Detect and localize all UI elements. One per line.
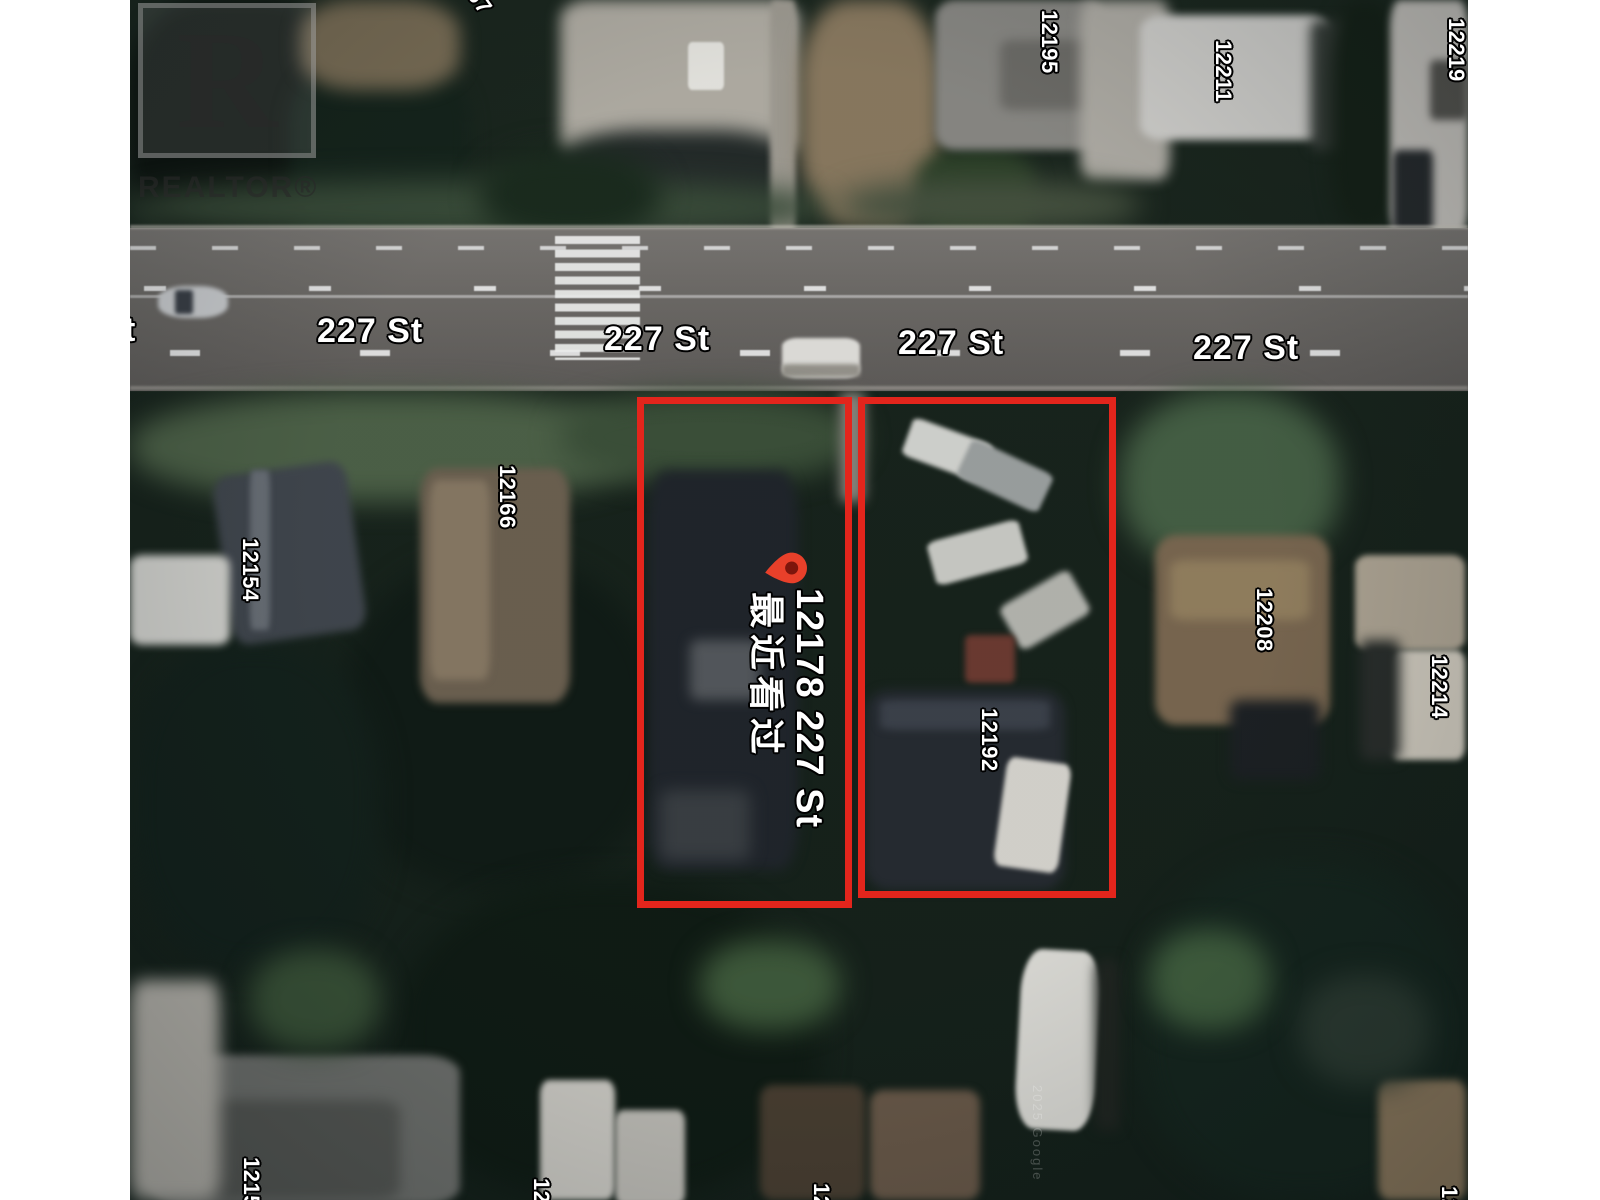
house-number-12154: 12154 xyxy=(239,538,262,602)
house-number-partial: 12 xyxy=(1438,1186,1461,1200)
truck-shadow xyxy=(782,364,860,377)
roof-facet xyxy=(430,480,490,680)
house-number-12195: 12195 xyxy=(1038,10,1061,74)
car-on-road xyxy=(158,286,228,318)
house-number-12192: 12192 xyxy=(978,708,1001,772)
street-label-227-st: 227 St xyxy=(1193,331,1299,367)
house-number-12214: 12214 xyxy=(1428,655,1451,719)
selected-address-label[interactable]: 12178 227 St xyxy=(788,588,828,828)
house-number-partial: 12 xyxy=(810,1183,833,1200)
satellite-feature xyxy=(1300,975,1430,1085)
house-number-partial: 12153 xyxy=(240,1157,263,1200)
house-roof xyxy=(1378,1080,1466,1200)
lane-markings xyxy=(130,246,1468,250)
realtor-watermark: R REALTOR® xyxy=(138,3,316,224)
lane-markings xyxy=(130,295,1468,298)
house-number-partial: 12 xyxy=(530,1178,553,1200)
street-label-227-st: 227 St xyxy=(317,314,423,350)
lawn xyxy=(250,950,380,1050)
house-roof xyxy=(870,1090,980,1200)
lane-markings xyxy=(144,286,1468,291)
satellite-feature xyxy=(130,640,380,970)
house-number-12208: 12208 xyxy=(1253,588,1276,652)
roof-facet xyxy=(1170,560,1310,620)
satellite-feature xyxy=(300,0,460,90)
parcel-outline-adjacent xyxy=(858,397,1116,898)
rv-trailer xyxy=(1013,948,1102,1132)
house-number-12211: 12211 xyxy=(1212,40,1235,102)
listing-map-screenshot: 227 St 227 St 227 St 227 St t 67 12195 1… xyxy=(0,0,1600,1200)
satellite-feature xyxy=(688,42,724,90)
house-number-12219: 12219 xyxy=(1445,18,1468,82)
curb xyxy=(130,225,1468,229)
yard-shadow xyxy=(1360,640,1400,760)
roof-facet xyxy=(200,1100,400,1200)
garage-shadow xyxy=(1230,700,1320,780)
realtor-monogram: R xyxy=(176,3,277,158)
rv-shadow xyxy=(1095,960,1120,1130)
car-windshield xyxy=(175,290,193,314)
satellite-map[interactable]: 227 St 227 St 227 St 227 St t 67 12195 1… xyxy=(130,0,1468,1200)
realtor-wordmark: REALTOR® xyxy=(138,171,316,205)
house-roof xyxy=(1355,555,1465,650)
realtor-logo-box: R xyxy=(138,3,316,158)
lawn xyxy=(1150,930,1270,1030)
map-credit: 2025 Google xyxy=(1030,1085,1045,1181)
street-label-partial: t xyxy=(130,313,136,349)
house-roof xyxy=(211,459,368,646)
street-label-227-st: 227 St xyxy=(604,322,710,358)
shed xyxy=(130,555,230,645)
driveway xyxy=(130,980,220,1200)
house-number-12166: 12166 xyxy=(496,465,519,529)
recently-viewed-label: 最近看过 xyxy=(746,592,784,760)
house-roof xyxy=(615,1110,685,1200)
satellite-feature xyxy=(840,180,1140,230)
satellite-feature xyxy=(1393,150,1433,235)
street-label-227-st: 227 St xyxy=(898,326,1004,362)
curb xyxy=(130,386,1468,390)
lawn xyxy=(700,940,840,1030)
house-number-partial: 67 xyxy=(463,0,497,18)
